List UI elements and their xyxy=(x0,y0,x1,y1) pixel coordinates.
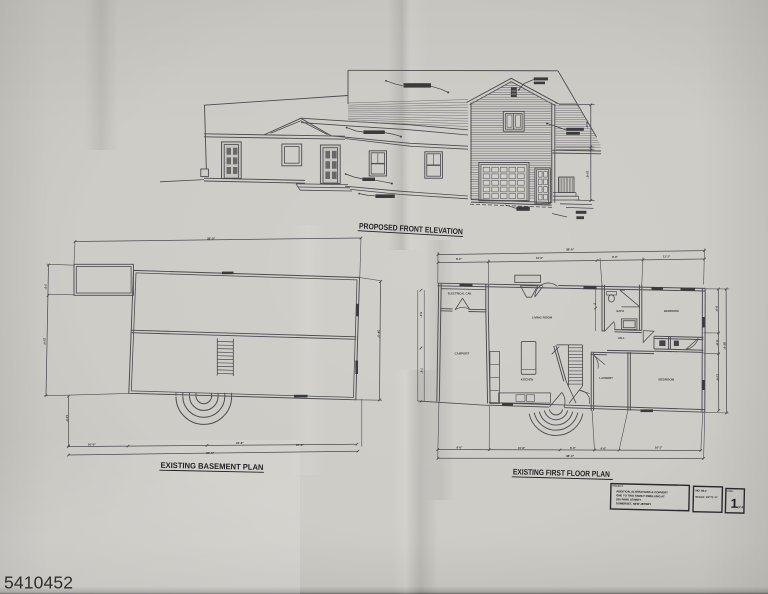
svg-text:9'-0": 9'-0" xyxy=(612,255,619,259)
svg-text:SCALE: 1/4"=1'-0": SCALE: 1/4"=1'-0" xyxy=(695,495,718,500)
svg-text:8'-0": 8'-0" xyxy=(457,446,464,450)
svg-text:10'-6": 10'-6" xyxy=(586,171,590,180)
svg-text:16'-8": 16'-8" xyxy=(236,441,244,445)
svg-text:15'-0": 15'-0" xyxy=(536,256,544,260)
svg-text:11'-6": 11'-6" xyxy=(716,374,720,382)
svg-text:HALL: HALL xyxy=(618,336,625,340)
svg-text:SOMERSET, NEW JERSEY: SOMERSET, NEW JERSEY xyxy=(616,501,651,506)
svg-text:5410452: 5410452 xyxy=(4,573,73,593)
svg-text:38'-0": 38'-0" xyxy=(566,454,575,458)
svg-text:11'-1": 11'-1" xyxy=(663,255,671,259)
svg-text:NO: 84-2: NO: 84-2 xyxy=(695,489,707,493)
svg-text:6'-0": 6'-0" xyxy=(570,446,577,450)
svg-text:14'-0": 14'-0" xyxy=(65,415,69,423)
svg-text:24'-0": 24'-0" xyxy=(376,330,380,339)
svg-text:3'-0": 3'-0" xyxy=(44,284,48,290)
svg-text:of 4: of 4 xyxy=(737,505,743,509)
svg-text:ELECTRICAL CAB: ELECTRICAL CAB xyxy=(448,292,472,296)
svg-text:16'-1": 16'-1" xyxy=(655,446,663,450)
svg-text:10'-0": 10'-0" xyxy=(88,442,96,446)
svg-text:10'-8": 10'-8" xyxy=(296,443,304,447)
svg-text:CARPORT: CARPORT xyxy=(455,351,470,355)
svg-text:32'-0": 32'-0" xyxy=(206,451,215,455)
svg-text:BEDROOM: BEDROOM xyxy=(664,309,679,313)
svg-text:BEDROOM: BEDROOM xyxy=(659,377,675,381)
svg-text:7'-6": 7'-6" xyxy=(420,368,423,374)
svg-text:8'-0": 8'-0" xyxy=(585,122,589,129)
svg-text:4'-0": 4'-0" xyxy=(601,446,608,450)
svg-text:28'-0": 28'-0" xyxy=(723,342,727,350)
svg-text:LIVING ROOM: LIVING ROOM xyxy=(532,316,553,320)
svg-text:KITCHEN: KITCHEN xyxy=(521,378,533,382)
svg-text:8'-0": 8'-0" xyxy=(419,312,422,318)
svg-text:BATH: BATH xyxy=(617,309,624,313)
svg-text:LAUNDRY: LAUNDRY xyxy=(599,376,613,380)
svg-text:38'-0": 38'-0" xyxy=(566,247,575,251)
svg-text:32'-0": 32'-0" xyxy=(207,237,216,241)
svg-text:21'-0": 21'-0" xyxy=(43,338,47,346)
svg-text:8'-0": 8'-0" xyxy=(456,257,463,261)
svg-text:15'-8": 15'-8" xyxy=(518,446,526,450)
svg-text:9'-0": 9'-0" xyxy=(715,306,719,313)
svg-text:DWG:: DWG: xyxy=(727,491,733,493)
svg-text:3'-0": 3'-0" xyxy=(715,340,719,347)
svg-text:PROJECT:: PROJECT: xyxy=(613,486,624,488)
